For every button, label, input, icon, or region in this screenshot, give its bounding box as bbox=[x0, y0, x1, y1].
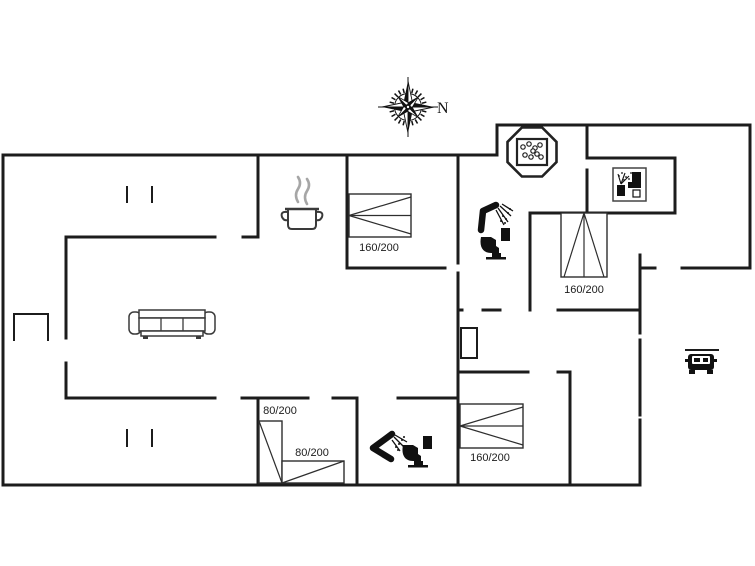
fireplace bbox=[461, 328, 477, 358]
toilet-icon bbox=[480, 228, 510, 260]
double-bed-top: 160/200 bbox=[349, 194, 411, 254]
double-bed-right: 160/200 bbox=[561, 213, 607, 296]
bed-size-label: 160/200 bbox=[359, 242, 399, 254]
dishwasher-icon bbox=[613, 168, 646, 201]
shower-icon bbox=[373, 434, 407, 459]
cooking-pot-icon bbox=[282, 177, 323, 229]
sofa-icon bbox=[129, 310, 215, 339]
floor-plan-drawing: 160/200160/200160/20080/20080/200N bbox=[0, 0, 755, 566]
bed-size-label: 80/200 bbox=[295, 447, 329, 459]
north-label: N bbox=[437, 100, 449, 117]
floor-plan: 160/200160/200160/20080/20080/200N bbox=[0, 0, 755, 566]
car-icon bbox=[685, 354, 717, 374]
single-bed-bottom: 80/200 bbox=[282, 447, 344, 483]
bed-size-label: 160/200 bbox=[470, 452, 510, 464]
compass-icon: N bbox=[378, 77, 449, 137]
bed-size-label: 80/200 bbox=[263, 405, 297, 417]
double-bed-south: 160/200 bbox=[460, 404, 523, 464]
bed-size-label: 160/200 bbox=[564, 284, 604, 296]
hot-tub-icon bbox=[508, 128, 557, 177]
toilet-icon bbox=[402, 436, 432, 468]
shower-icon bbox=[481, 204, 513, 230]
